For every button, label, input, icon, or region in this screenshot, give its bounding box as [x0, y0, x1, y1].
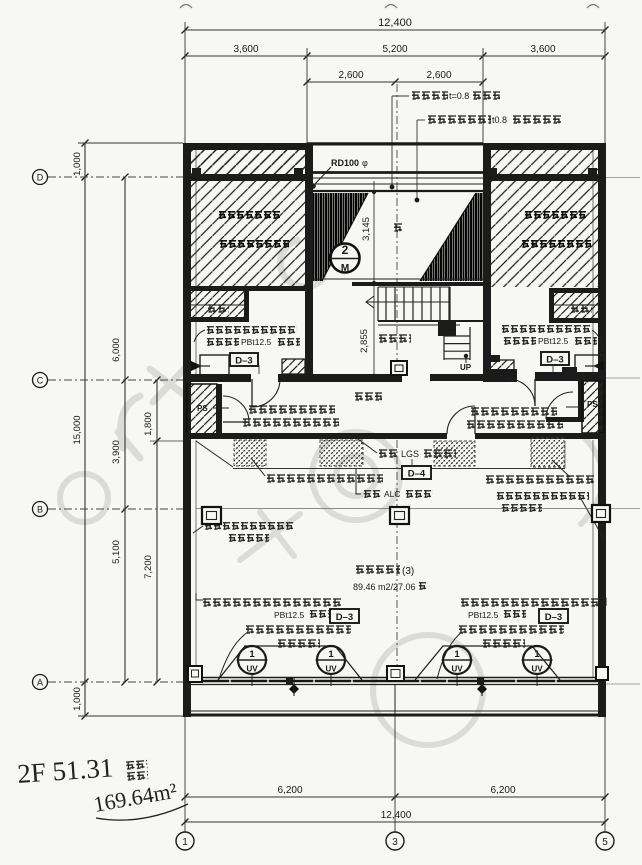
svg-text:3,145: 3,145: [361, 217, 372, 241]
svg-text:PS: PS: [587, 400, 598, 409]
svg-text:15,000: 15,000: [72, 415, 83, 444]
svg-text:C: C: [37, 376, 44, 386]
svg-text:89.46 m2/27.06: 89.46 m2/27.06: [353, 582, 416, 592]
svg-text:1,000: 1,000: [72, 687, 83, 711]
svg-text:3: 3: [392, 837, 398, 848]
svg-text:2,855: 2,855: [359, 329, 370, 353]
svg-text:12,400: 12,400: [381, 810, 412, 821]
svg-text:1: 1: [249, 649, 255, 660]
svg-text:6,000: 6,000: [111, 338, 122, 362]
svg-text:D–3: D–3: [336, 612, 353, 623]
svg-text:1,000: 1,000: [72, 152, 83, 176]
svg-text:PBt12.5: PBt12.5: [274, 610, 305, 620]
svg-text:UP: UP: [460, 363, 472, 372]
svg-text:2,600: 2,600: [426, 70, 451, 81]
svg-text:12,400: 12,400: [378, 17, 412, 29]
svg-text:1: 1: [454, 649, 460, 660]
svg-text:A: A: [37, 678, 43, 688]
svg-text:2,600: 2,600: [338, 70, 363, 81]
svg-text:ALC: ALC: [384, 489, 401, 499]
svg-text:5,200: 5,200: [382, 44, 407, 55]
svg-text:6,200: 6,200: [277, 785, 302, 796]
svg-text:5: 5: [602, 837, 608, 848]
svg-text:PBt12.5: PBt12.5: [241, 337, 272, 347]
svg-text:M: M: [341, 263, 349, 274]
svg-text:(3): (3): [402, 566, 414, 577]
svg-text:7,200: 7,200: [143, 555, 154, 579]
svg-text:LGS: LGS: [401, 449, 419, 459]
svg-text:1: 1: [182, 837, 188, 848]
svg-text:PBt12.5: PBt12.5: [538, 336, 569, 346]
svg-text:PBt12.5: PBt12.5: [468, 610, 499, 620]
svg-text:D–4: D–4: [408, 469, 426, 480]
svg-text:D–3: D–3: [235, 356, 252, 367]
svg-text:3,600: 3,600: [530, 44, 555, 55]
svg-text:φ: φ: [362, 158, 368, 168]
svg-text:3,900: 3,900: [111, 440, 122, 464]
svg-text:6,200: 6,200: [490, 785, 515, 796]
svg-text:1: 1: [534, 649, 540, 660]
svg-text:PS: PS: [197, 404, 208, 413]
svg-text:t0.8: t0.8: [492, 115, 507, 125]
svg-text:5,100: 5,100: [111, 540, 122, 564]
svg-text:UV: UV: [246, 665, 258, 674]
svg-text:D: D: [37, 173, 44, 183]
svg-text:1,800: 1,800: [143, 412, 154, 436]
svg-text:RD100: RD100: [331, 158, 359, 168]
svg-text:UV: UV: [325, 665, 337, 674]
svg-text:t=0.8: t=0.8: [449, 91, 469, 101]
svg-text:UV: UV: [531, 665, 543, 674]
svg-text:D–3: D–3: [545, 612, 562, 623]
svg-text:2: 2: [342, 243, 349, 257]
svg-text:1: 1: [328, 649, 334, 660]
svg-text:B: B: [37, 505, 43, 515]
svg-text:D–3: D–3: [546, 355, 563, 366]
svg-text:UV: UV: [451, 665, 463, 674]
svg-text:3,600: 3,600: [233, 44, 258, 55]
